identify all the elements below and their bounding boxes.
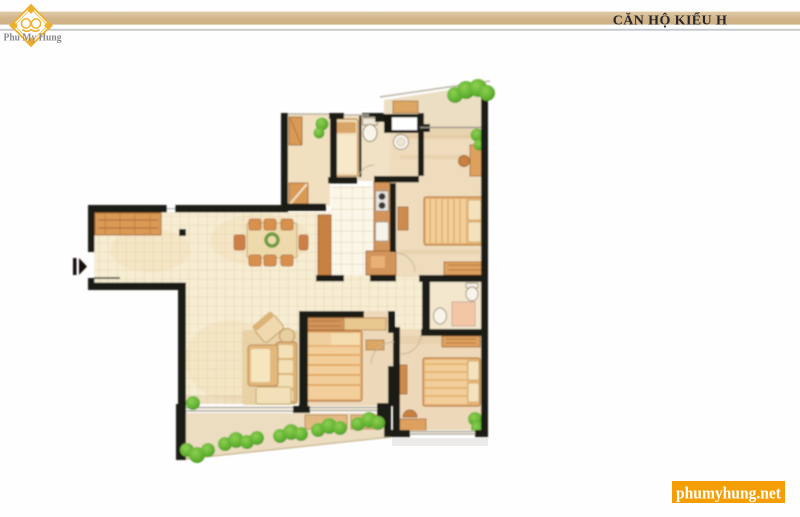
- svg-text:CĂN HỘ KIỂU H: CĂN HỘ KIỂU H: [613, 11, 728, 29]
- svg-text:phumyhung.net: phumyhung.net: [676, 484, 781, 503]
- svg-text:Phu My Hung: Phu My Hung: [4, 33, 63, 44]
